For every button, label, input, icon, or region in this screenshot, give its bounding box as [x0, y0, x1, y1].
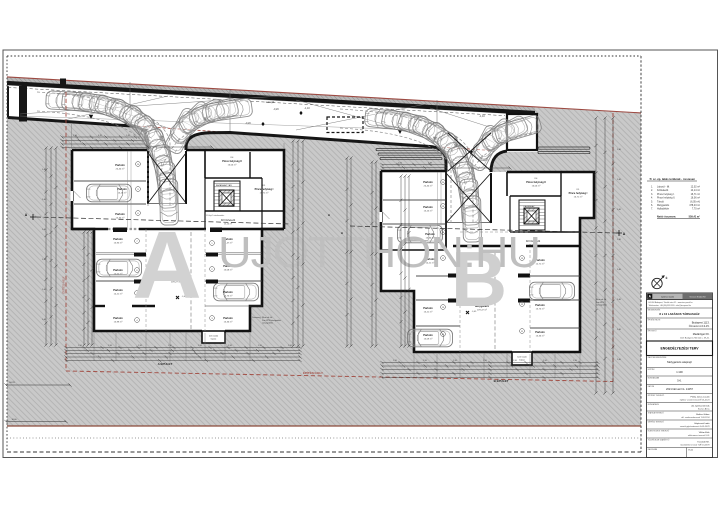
- svg-text:14,52 m²: 14,52 m²: [114, 272, 123, 275]
- svg-text:TŰZVÉDELMI SZAKÉRTŐ: TŰZVÉDELMI SZAKÉRTŐ: [648, 438, 670, 441]
- svg-text:Pince helyiség I.: Pince helyiség I.: [657, 193, 675, 196]
- svg-text:2cm XPS: 2cm XPS: [596, 302, 605, 304]
- svg-text:1,50: 1,50: [288, 345, 292, 347]
- svg-text:Parkoló: Parkoló: [535, 330, 545, 334]
- svg-text:GÉPÉSZ TERVEZŐ: GÉPÉSZ TERVEZŐ: [648, 420, 665, 423]
- svg-text:kerti tároló: kerti tároló: [209, 335, 219, 338]
- svg-text:Parkoló: Parkoló: [423, 180, 433, 184]
- svg-text:2021 fabruár hó. 14257: 2021 fabruár hó. 14257: [666, 387, 694, 391]
- svg-text:Hulladéktér: Hulladéktér: [657, 208, 669, 211]
- svg-text:5,40: 5,40: [617, 359, 621, 361]
- svg-text:1,50: 1,50: [453, 360, 457, 362]
- svg-text:1,50: 1,50: [228, 345, 232, 347]
- svg-text:13,75 m²: 13,75 m²: [224, 294, 233, 297]
- svg-text:5,40: 5,40: [42, 319, 46, 321]
- svg-text:vízszigetelés: vízszigetelés: [596, 304, 607, 307]
- svg-text:lejárat: lejárat: [211, 338, 217, 341]
- svg-text:1,50: 1,50: [168, 345, 172, 347]
- svg-text:5,40: 5,40: [617, 269, 621, 271]
- svg-text:13,36 m²: 13,36 m²: [224, 320, 233, 323]
- svg-text:vezető gépésztervező G-01-5678: vezető gépésztervező G-01-5678: [680, 425, 710, 428]
- svg-text:ELEKTROMOS TERVEZŐ: ELEKTROMOS TERVEZŐ: [648, 429, 670, 432]
- svg-text:Parkoló: Parkoló: [423, 333, 433, 337]
- svg-text:RAJZ MEGNEVEZÉSE: RAJZ MEGNEVEZÉSE: [648, 356, 667, 359]
- svg-text:LÉPTÉK: LÉPTÉK: [648, 368, 656, 371]
- svg-text:Parkoló: Parkoló: [113, 268, 123, 272]
- svg-text:Tároló: Tároló: [657, 200, 664, 203]
- svg-text:építész studió: építész studió: [661, 295, 675, 298]
- svg-text:MUNKASZÁM: MUNKASZÁM: [648, 376, 660, 379]
- svg-text:4,35: 4,35: [98, 135, 102, 137]
- svg-text:RAJZSZÁM: RAJZSZÁM: [648, 448, 658, 451]
- svg-text:13,09 m²: 13,09 m²: [424, 337, 433, 340]
- svg-text:478,43 m²: 478,43 m²: [689, 204, 700, 207]
- svg-text:(6,05 m²): (6,05 m²): [690, 200, 700, 203]
- svg-text:'A' sz. ép. lakás területek -: 'A' sz. ép. lakás területek - összesen: [649, 177, 695, 181]
- svg-text:Parkoló: Parkoló: [117, 187, 127, 191]
- svg-text:Pince helyiség II.: Pince helyiség II.: [657, 197, 675, 200]
- svg-text:14,21 m²: 14,21 m²: [114, 292, 123, 295]
- svg-text:-0,20: -0,20: [245, 122, 251, 125]
- svg-text:Budapest 1113.: Budapest 1113.: [692, 321, 710, 325]
- svg-text:1,50: 1,50: [393, 360, 397, 362]
- svg-text:D2 Közlekedő: D2 Közlekedő: [221, 220, 236, 222]
- svg-text:2cm XPS hőszigetelés: 2cm XPS hőszigetelés: [262, 319, 281, 322]
- svg-text:5,40: 5,40: [617, 239, 621, 241]
- svg-text:1,50: 1,50: [423, 360, 427, 362]
- svg-text:Pince helyiség I: Pince helyiség I: [255, 188, 274, 191]
- svg-text:6.: 6.: [651, 204, 653, 207]
- svg-text:13,30 m²: 13,30 m²: [116, 216, 125, 219]
- svg-text:5,40: 5,40: [42, 229, 46, 231]
- svg-text:5,40: 5,40: [617, 179, 621, 181]
- svg-text:Pince helyiség II: Pince helyiség II: [222, 160, 242, 163]
- svg-text:okl. építészmérnök: okl. építészmérnök: [691, 405, 710, 408]
- svg-text:1,50: 1,50: [78, 345, 82, 347]
- svg-text:ÉPÍTÉSZ TERVEZŐ: ÉPÍTÉSZ TERVEZŐ: [648, 394, 665, 397]
- svg-text:Madárliget Kft.: Madárliget Kft.: [693, 332, 710, 336]
- svg-text:16,06 m²: 16,06 m²: [228, 164, 237, 167]
- svg-text:5,40: 5,40: [617, 209, 621, 211]
- svg-text:STATIKA TERVEZŐ: STATIKA TERVEZŐ: [648, 411, 665, 414]
- svg-text:Példa János László: Példa János László: [691, 397, 711, 399]
- svg-text:Parkoló: Parkoló: [115, 212, 125, 216]
- svg-text:2,56: 2,56: [73, 135, 77, 137]
- svg-text:1,50: 1,50: [138, 345, 142, 347]
- svg-text:13,25 m²: 13,25 m²: [424, 209, 433, 212]
- svg-text:1,50: 1,50: [543, 360, 547, 362]
- svg-text:ÉPÍTTETŐ: ÉPÍTTETŐ: [648, 329, 657, 332]
- svg-text:ENGEDÉLYEZÉSI TERV: ENGEDÉLYEZÉSI TERV: [660, 346, 699, 351]
- svg-text:14,14 m²: 14,14 m²: [691, 189, 701, 192]
- svg-text:H-1094 Budapest, Tűzoltó utca: H-1094 Budapest, Tűzoltó utca 62. - www.…: [649, 301, 693, 304]
- svg-text:1,50: 1,50: [198, 345, 202, 347]
- svg-text:Parkoló: Parkoló: [223, 316, 233, 320]
- svg-text:elektromos tervező V-01: elektromos tervező V-01: [688, 434, 710, 437]
- svg-text:50,29: 50,29: [9, 382, 15, 384]
- svg-text:Kovács Anna: Kovács Anna: [698, 408, 711, 411]
- svg-text:7,70 m²: 7,70 m²: [692, 208, 700, 211]
- svg-text:16,71 m²: 16,71 m²: [691, 193, 701, 196]
- svg-text:1,50: 1,50: [513, 360, 517, 362]
- svg-text:Mélygarázs: Mélygarázs: [657, 204, 670, 207]
- svg-text:Pince helyiség I: Pince helyiség I: [569, 192, 588, 195]
- svg-text:13,95 m²: 13,95 m²: [114, 241, 123, 244]
- svg-text:5-6.: 5-6.: [677, 378, 682, 382]
- svg-text:5,40: 5,40: [617, 329, 621, 331]
- svg-text:Parkoló: Parkoló: [113, 288, 123, 292]
- svg-text:vízszigetelés: vízszigetelés: [262, 322, 273, 325]
- svg-text:B ÉPÜLET: B ÉPÜLET: [494, 378, 509, 383]
- svg-text:1,49: 1,49: [126, 135, 130, 137]
- svg-text:Közlekedő: Közlekedő: [657, 189, 669, 192]
- svg-text:13,25 m²: 13,25 m²: [118, 191, 127, 194]
- svg-text:Parkoló: Parkoló: [113, 237, 123, 241]
- svg-text:Lursejtő: Lursejtő: [266, 101, 275, 104]
- svg-text:tűzvédelmi tervező TUÉ 13-5678: tűzvédelmi tervező TUÉ 13-5678: [680, 444, 710, 447]
- svg-text:7.: 7.: [651, 208, 653, 211]
- svg-text:5,40: 5,40: [42, 289, 46, 291]
- svg-text:-1,10: -1,10: [479, 115, 485, 118]
- svg-text:2,56: 2,56: [398, 163, 402, 165]
- svg-text:Gépészeti Iroda: Gépészeti Iroda: [694, 422, 710, 425]
- svg-text:1113 Budapest, Mérnök u. 39-41: 1113 Budapest, Mérnök u. 39-41.: [680, 337, 710, 340]
- svg-text:16,16 m²: 16,16 m²: [224, 223, 232, 226]
- svg-text:É: É: [666, 275, 668, 280]
- svg-text:Villám Elek: Villám Elek: [699, 432, 711, 434]
- svg-text:13,21 m²: 13,21 m²: [424, 310, 433, 313]
- svg-text:5,40: 5,40: [42, 199, 46, 201]
- svg-text:4.: 4.: [651, 197, 653, 200]
- svg-text:Balázs Gábor: Balázs Gábor: [696, 413, 710, 416]
- svg-text:Parkoló: Parkoló: [535, 303, 545, 307]
- svg-text:16,00: 16,00: [11, 419, 17, 421]
- svg-text:20,40 m²: 20,40 m²: [424, 184, 433, 187]
- svg-text:16,71 m²: 16,71 m²: [574, 196, 583, 199]
- svg-text:Parkoló: Parkoló: [423, 205, 433, 209]
- svg-text:13,75 m²: 13,75 m²: [536, 307, 545, 310]
- svg-text:KAZÁNHÁZ: KAZÁNHÁZ: [523, 205, 535, 208]
- svg-text:ÉPÍTÉSI HELY: ÉPÍTÉSI HELY: [303, 370, 323, 375]
- svg-text:1,50: 1,50: [483, 360, 487, 362]
- svg-text:Pince helyiség II: Pince helyiség II: [526, 181, 546, 184]
- svg-text:okl. szerkezettervező T-01/123: okl. szerkezettervező T-01/1234: [681, 416, 710, 419]
- svg-text:1,49: 1,49: [428, 163, 432, 165]
- svg-text:30cm vb. fal: 30cm vb. fal: [262, 317, 273, 319]
- svg-text:20,40 m²: 20,40 m²: [116, 167, 125, 170]
- svg-text:UJOTTHON:HU: UJOTTHON:HU: [218, 228, 540, 277]
- svg-text:Tervező Stúdió Kft: Tervező Stúdió Kft: [689, 295, 706, 298]
- svg-text:MUNKATÁRS: MUNKATÁRS: [648, 403, 660, 406]
- svg-text:8 x 10 LAKÁSOS TÁRSASHÁZ: 8 x 10 LAKÁSOS TÁRSASHÁZ: [659, 311, 700, 316]
- svg-text:A ÉPÜLET: A ÉPÜLET: [158, 361, 173, 366]
- svg-text:Parkoló: Parkoló: [113, 316, 123, 320]
- svg-text:A: A: [132, 212, 201, 319]
- svg-text:3.: 3.: [651, 193, 653, 196]
- svg-text:5,40: 5,40: [42, 169, 46, 171]
- svg-text:13,36 m²: 13,36 m²: [536, 334, 545, 337]
- svg-text:E-01: E-01: [689, 450, 694, 452]
- svg-text:-1,10: -1,10: [304, 107, 310, 110]
- svg-text:559,41 m²: 559,41 m²: [689, 215, 701, 219]
- svg-text:16,06 m²: 16,06 m²: [532, 185, 541, 188]
- svg-text:1.: 1.: [651, 186, 653, 189]
- svg-text:Nettó összesen:: Nettó összesen:: [657, 216, 676, 219]
- svg-text:építész vezető tervező É 01-01: építész vezető tervező É 01-0123: [680, 399, 711, 402]
- svg-text:13,99 m²: 13,99 m²: [114, 320, 123, 323]
- svg-text:Telefonszám: +36-(30)-555-5555: Telefonszám: +36-(30)-555-5555 - info@te…: [649, 304, 691, 307]
- svg-text:Parkoló: Parkoló: [423, 306, 433, 310]
- svg-text:kerti tároló: kerti tároló: [517, 356, 527, 359]
- svg-text:16,71 m²: 16,71 m²: [260, 192, 269, 195]
- svg-text:16,06 m²: 16,06 m²: [691, 197, 701, 200]
- svg-text:1% lejt.5 vízelvezetés: 1% lejt.5 vízelvezetés: [206, 214, 224, 217]
- svg-text:Mélygarázs alaprajz: Mélygarázs alaprajz: [667, 360, 692, 364]
- svg-text:2.: 2.: [651, 189, 653, 192]
- svg-text:Tűzvédő Kft.: Tűzvédő Kft.: [697, 441, 710, 444]
- svg-text:1,50: 1,50: [108, 345, 112, 347]
- svg-text:ÉPÍTÉS HELYE: ÉPÍTÉS HELYE: [648, 318, 661, 321]
- svg-text:-0,20: -0,20: [273, 108, 279, 111]
- svg-text:5,40: 5,40: [617, 299, 621, 301]
- svg-text:KAZÁNHÁZ TÁR.: KAZÁNHÁZ TÁR.: [216, 184, 233, 187]
- svg-text:1,50: 1,50: [573, 360, 577, 362]
- svg-text:Parkoló: Parkoló: [115, 163, 125, 167]
- svg-text:Lépcső - lift: Lépcső - lift: [657, 186, 670, 189]
- svg-text:5.: 5.: [651, 200, 653, 203]
- svg-text:1,50: 1,50: [258, 345, 262, 347]
- svg-text:Parkoló: Parkoló: [223, 290, 233, 294]
- svg-text:5,40: 5,40: [617, 149, 621, 151]
- svg-text:5,40: 5,40: [42, 259, 46, 261]
- svg-text:12,02 m²: 12,02 m²: [691, 186, 701, 189]
- svg-text:DÁTUM: DÁTUM: [648, 385, 655, 388]
- svg-text:1:100: 1:100: [676, 370, 683, 374]
- svg-text:MEGNEVEZÉS: MEGNEVEZÉS: [648, 308, 661, 311]
